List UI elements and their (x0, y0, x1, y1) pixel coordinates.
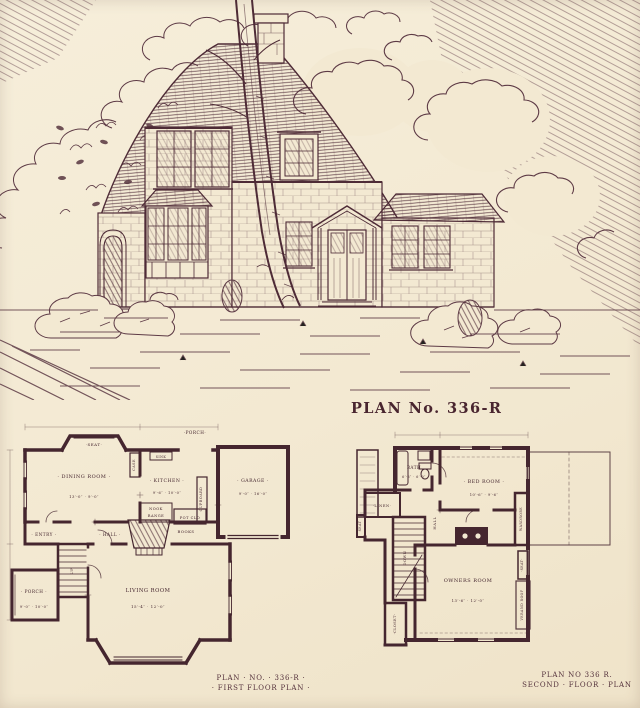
label-veranda-roof: VERAND ROOF (520, 589, 524, 621)
second-floor-caption-line1: PLAN NO 336 R. (518, 670, 636, 680)
side-porch-walls (12, 570, 58, 620)
label-bath-dims: 6′-6″ · 6′-0″ (402, 475, 426, 479)
label-dining-dims: 13′-0″ · 9′-0″ (69, 494, 99, 499)
label-wardrobe: WARDROBE (519, 507, 523, 531)
walls-exterior (25, 436, 230, 663)
second-floor-caption-line2: SECOND · FLOOR · PLAN (518, 680, 636, 690)
first-floor-caption-line2: · FIRST FLOOR PLAN · (200, 683, 322, 693)
label-owners-room: OWNERS ROOM (444, 578, 493, 584)
dimension-lines-2 (395, 432, 528, 438)
second-floor-caption: PLAN NO 336 R. SECOND · FLOOR · PLAN (518, 670, 636, 690)
label-dining-room: · DINING ROOM · (57, 474, 110, 480)
mid-window (283, 222, 315, 268)
label-entry: · ENTRY · (31, 532, 56, 537)
stairs-down (393, 517, 425, 600)
second-floor-plan: BATH 6′-6″ · 6′-0″ · BED ROOM · 10′-6″ ·… (338, 405, 640, 670)
fireplace (128, 520, 170, 555)
label-seat-left: SEAT (358, 520, 362, 531)
label-down: DOWN (403, 551, 407, 566)
label-nook: NOOK (149, 507, 163, 511)
label-hall-2: HALL (432, 516, 437, 529)
label-living-room: LIVING ROOM (126, 588, 171, 594)
bay-window (142, 190, 212, 278)
chimney (254, 14, 288, 63)
label-owners-dims: 13′-6″ · 12′-0″ (452, 598, 485, 603)
label-seat-right: ·SEAT· (520, 558, 524, 572)
label-pot-closet: POT CLO (180, 516, 201, 520)
label-garage: · GARAGE · (237, 478, 269, 484)
label-bed-room: · BED ROOM · (464, 479, 505, 485)
label-linen: ·LINEN· (373, 504, 392, 508)
plan-book-page: PLAN No. 336-R (0, 0, 640, 708)
label-kitchen-dims: 9′-6″ · 10′-0″ (153, 491, 182, 495)
first-floor-caption: PLAN · NO. · 336-R · · FIRST FLOOR PLAN … (200, 673, 322, 693)
chimney-block (455, 527, 488, 545)
label-porch-top: ·PORCH· (184, 430, 206, 435)
house-perspective-rendering (0, 0, 640, 400)
label-closet: ·CLOSET· (393, 614, 397, 635)
label-case: CASE (132, 459, 136, 471)
label-books: BOOKS (177, 529, 194, 534)
label-seat: ·SEAT· (86, 442, 103, 447)
label-cupboard: CUPBOARD (199, 487, 203, 512)
label-bed-dims: 10′-6″ · 9′-6″ (470, 493, 499, 497)
label-side-porch: · PORCH · (21, 589, 47, 594)
first-floor-caption-line1: PLAN · NO. · 336-R · (200, 673, 322, 683)
label-kitchen: · KITCHEN · (150, 478, 185, 484)
label-bath: BATH (407, 465, 421, 470)
label-living-dims: 15′-4″ · 12′-0″ (131, 604, 165, 609)
label-garage-dims: 9′-0″ · 16′-0″ (239, 492, 268, 496)
label-sink: SINK (156, 455, 167, 459)
kitchen-fittings (130, 450, 207, 524)
label-hall: · HALL · (99, 532, 121, 537)
dormer-window (277, 132, 321, 180)
first-floor-plan: ·SEAT· ·PORCH· · DINING ROOM · 13′-0″ · … (0, 405, 320, 670)
label-up: UP (69, 568, 74, 575)
closets-2 (357, 493, 528, 645)
label-range: RANGE (148, 514, 164, 518)
label-side-porch-dims: 9′-0″ · 10′-0″ (20, 605, 49, 609)
